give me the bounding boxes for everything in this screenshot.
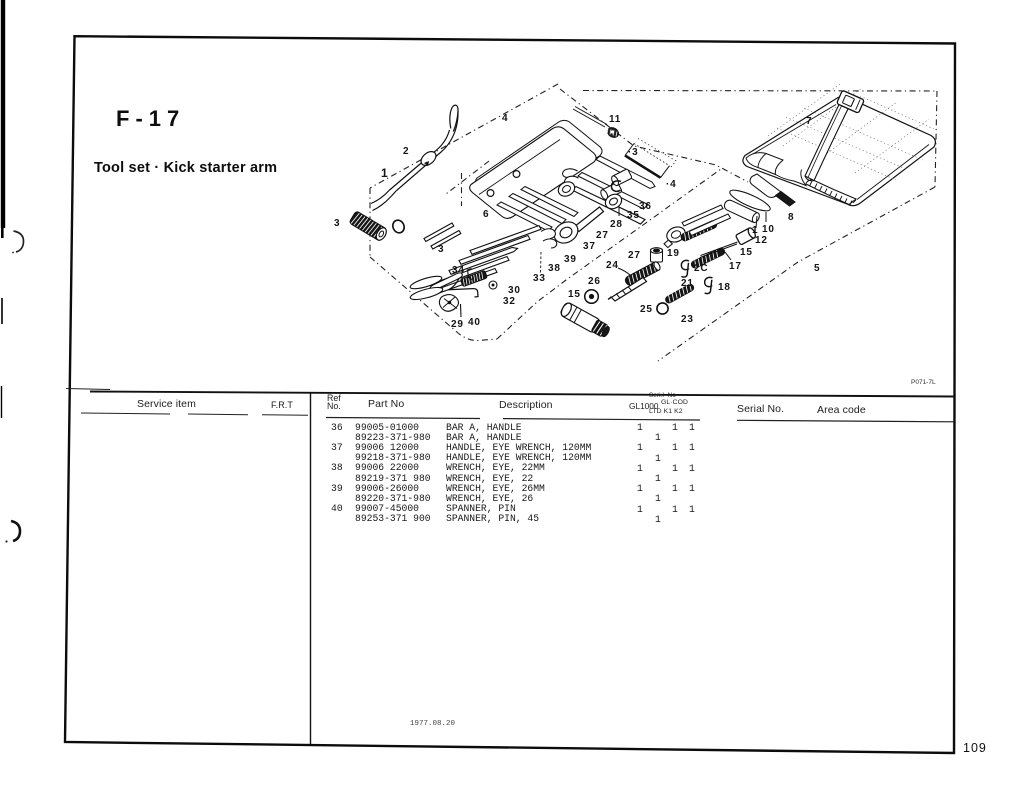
svg-text:5: 5 — [814, 263, 820, 274]
svg-text:15: 15 — [740, 247, 753, 258]
svg-text:32: 32 — [503, 296, 516, 307]
svg-text:·3: ·3 — [628, 147, 639, 158]
svg-text:34: 34 — [452, 265, 465, 276]
svg-text:10: 10 — [762, 224, 775, 235]
svg-text:39: 39 — [564, 254, 577, 265]
svg-text:25: 25 — [640, 304, 653, 315]
svg-text:23: 23 — [681, 314, 694, 325]
svg-text:29: 29 — [451, 319, 464, 330]
svg-text:37: 37 — [583, 241, 596, 252]
svg-text:26: 26 — [588, 276, 601, 287]
svg-text:3: 3 — [334, 218, 340, 229]
svg-text:·4: ·4 — [666, 179, 677, 190]
svg-text:2C: 2C — [694, 263, 708, 274]
svg-text:30: 30 — [508, 285, 521, 296]
svg-text:1: 1 — [381, 166, 388, 180]
svg-text:35: 35 — [627, 210, 640, 221]
svg-text:33: 33 — [533, 273, 546, 284]
svg-text:7: 7 — [806, 116, 812, 127]
svg-text:3: 3 — [438, 244, 444, 255]
svg-text:8: 8 — [788, 212, 794, 223]
svg-text:17: 17 — [729, 261, 742, 272]
svg-text:15: 15 — [568, 289, 581, 300]
svg-text:11: 11 — [609, 114, 621, 125]
svg-text:28: 28 — [610, 219, 623, 230]
svg-text:6: 6 — [483, 209, 489, 220]
svg-text:38: 38 — [548, 263, 561, 274]
svg-text:12: 12 — [755, 235, 768, 246]
svg-text:24: 24 — [606, 260, 619, 271]
svg-text:40: 40 — [468, 317, 481, 328]
svg-text:19: 19 — [667, 248, 680, 259]
svg-text:2: 2 — [403, 146, 409, 157]
svg-text:27: 27 — [628, 250, 641, 261]
svg-text:27: 27 — [596, 230, 609, 241]
svg-text:18: 18 — [718, 282, 731, 293]
svg-text:1: 1 — [752, 225, 758, 236]
svg-text:21: 21 — [681, 278, 694, 289]
svg-text:36: 36 — [639, 201, 652, 212]
svg-text:4: 4 — [502, 113, 508, 124]
